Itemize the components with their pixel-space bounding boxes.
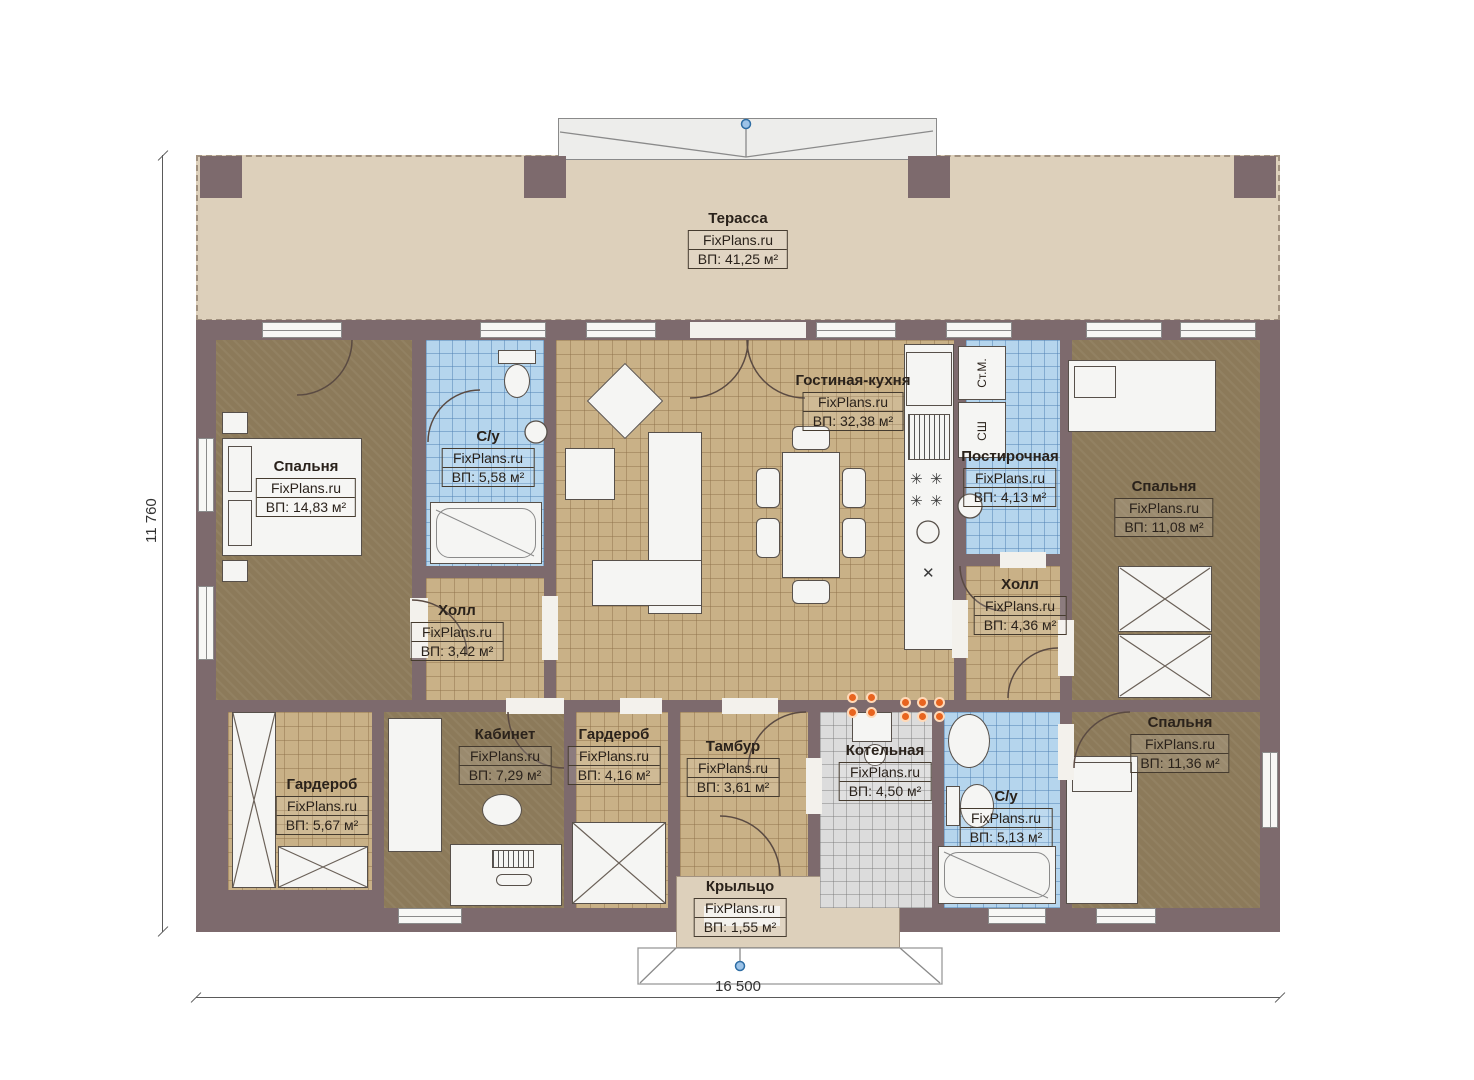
wardrobe-cabinet (1118, 634, 1212, 698)
room-label-office: Кабинет FixPlans.ru ВП: 7,29 м² (459, 726, 552, 785)
room-label-vestibule: Тамбур FixPlans.ru ВП: 3,61 м² (687, 738, 780, 797)
tv-stand (592, 560, 702, 606)
office-sofa (388, 718, 442, 852)
brand-label: FixPlans.ru (1131, 735, 1228, 753)
dimension-line-bottom (196, 997, 1280, 998)
brand-label: FixPlans.ru (277, 797, 368, 815)
room-name: Гардероб (568, 726, 661, 743)
brand-label: FixPlans.ru (443, 449, 534, 467)
radiator-marker-icon (917, 711, 928, 722)
room-name: С/у (442, 428, 535, 445)
area-label: ВП: 32,38 м² (804, 411, 902, 430)
room-label-hall-right: Холл FixPlans.ru ВП: 4,36 м² (974, 576, 1067, 635)
dimension-width-label: 16 500 (715, 978, 761, 995)
wardrobe-cabinet (278, 846, 368, 888)
dimension-tick (158, 150, 169, 161)
room-label-bathroom-top: С/у FixPlans.ru ВП: 5,58 м² (442, 428, 535, 487)
room-name: Холл (411, 602, 504, 619)
window (1180, 322, 1256, 338)
sink-marker-icon: ✕ (922, 566, 935, 581)
radiator-marker-icon (866, 707, 877, 718)
brand-label: FixPlans.ru (965, 469, 1056, 487)
dimension-tick (158, 926, 169, 937)
nightstand (222, 560, 248, 582)
window (946, 322, 1012, 338)
keyboard (496, 874, 532, 886)
area-label: ВП: 41,25 м² (689, 249, 787, 268)
pillow (228, 500, 252, 546)
room-name: Терасса (688, 210, 788, 227)
window (262, 322, 342, 338)
area-label: ВП: 5,58 м² (443, 467, 534, 486)
stove-burner-icon: ✳ (910, 494, 923, 509)
area-label: ВП: 4,16 м² (569, 765, 660, 784)
toilet-tank (946, 786, 960, 826)
radiator-marker-icon (917, 697, 928, 708)
room-label-wardrobe-mid: Гардероб FixPlans.ru ВП: 4,16 м² (568, 726, 661, 785)
room-name: Крыльцо (694, 878, 787, 895)
radiator-marker-icon (866, 692, 877, 703)
radiator-marker-icon (900, 697, 911, 708)
window (398, 908, 462, 924)
room-name: Гостиная-кухня (796, 372, 911, 389)
door-gap (1058, 724, 1074, 780)
area-label: ВП: 4,50 м² (840, 781, 931, 800)
terrace-post (1234, 156, 1276, 198)
room-label-bedroom-left: Спальня FixPlans.ru ВП: 14,83 м² (256, 458, 356, 517)
brand-label: FixPlans.ru (257, 479, 355, 497)
brand-label: FixPlans.ru (460, 747, 551, 765)
area-label: ВП: 4,13 м² (965, 487, 1056, 506)
window (1096, 908, 1156, 924)
toilet-tank (498, 350, 536, 364)
brand-label: FixPlans.ru (804, 393, 902, 411)
brand-label: FixPlans.ru (695, 899, 786, 917)
area-label: ВП: 4,36 м² (975, 615, 1066, 634)
room-name: Спальня (1114, 478, 1213, 495)
area-label: ВП: 11,08 м² (1115, 517, 1212, 536)
room-label-bedroom-top-right: Спальня FixPlans.ru ВП: 11,08 м² (1114, 478, 1213, 537)
room-name: Спальня (1130, 714, 1229, 731)
wardrobe-cabinet (1118, 566, 1212, 632)
area-label: ВП: 14,83 м² (257, 497, 355, 516)
brand-label: FixPlans.ru (840, 763, 931, 781)
area-label: ВП: 11,36 м² (1131, 753, 1228, 772)
room-name: Тамбур (687, 738, 780, 755)
chair (792, 580, 830, 604)
window (198, 438, 214, 512)
toilet-bowl (504, 364, 530, 398)
chair (756, 518, 780, 558)
area-label: ВП: 3,42 м² (412, 641, 503, 660)
door-gap (620, 698, 662, 714)
dishwasher (908, 414, 950, 460)
printer (492, 850, 534, 868)
bathtub (430, 502, 542, 564)
chair (756, 468, 780, 508)
brand-label: FixPlans.ru (961, 809, 1052, 827)
wardrobe-cabinet (232, 712, 276, 888)
window (586, 322, 656, 338)
washing-machine-label: Ст.М. (975, 349, 989, 397)
room-label-living-kitchen: Гостиная-кухня FixPlans.ru ВП: 32,38 м² (796, 372, 911, 431)
room-label-bathroom-bottom: С/у FixPlans.ru ВП: 5,13 м² (960, 788, 1053, 847)
nightstand (222, 412, 248, 434)
room-name: Кабинет (459, 726, 552, 743)
terrace-post (200, 156, 242, 198)
terrace-steps (558, 118, 937, 160)
sink (948, 714, 990, 768)
chair (842, 468, 866, 508)
fridge (906, 352, 952, 406)
brand-label: FixPlans.ru (688, 759, 779, 777)
brand-label: FixPlans.ru (412, 623, 503, 641)
door-gap (952, 600, 968, 658)
dimension-height-label: 11 760 (143, 498, 160, 543)
radiator-marker-icon (934, 697, 945, 708)
dimension-line-left (162, 155, 163, 932)
stove-burner-icon: ✳ (910, 472, 923, 487)
brand-label: FixPlans.ru (569, 747, 660, 765)
room-label-bedroom-bottom-right: Спальня FixPlans.ru ВП: 11,36 м² (1130, 714, 1229, 773)
door-gap (542, 596, 558, 660)
window (480, 322, 546, 338)
room-label-wardrobe-left: Гардероб FixPlans.ru ВП: 5,67 м² (276, 776, 369, 835)
terrace-post (908, 156, 950, 198)
radiator-marker-icon (847, 707, 858, 718)
room-label-laundry: Постирочная FixPlans.ru ВП: 4,13 м² (961, 448, 1058, 507)
window (1086, 322, 1162, 338)
door-gap (1000, 552, 1046, 568)
door-gap (506, 698, 564, 714)
terrace-post (524, 156, 566, 198)
room-name: С/у (960, 788, 1053, 805)
room-name: Холл (974, 576, 1067, 593)
coffee-table (565, 448, 615, 500)
brand-label: FixPlans.ru (689, 231, 787, 249)
chair (842, 518, 866, 558)
pillow (1072, 762, 1132, 792)
area-label: ВП: 7,29 м² (460, 765, 551, 784)
area-label: ВП: 5,67 м² (277, 815, 368, 834)
window (1262, 752, 1278, 828)
room-name: Котельная (839, 742, 932, 759)
room-name: Спальня (256, 458, 356, 475)
area-label: ВП: 1,55 м² (695, 917, 786, 936)
room-label-porch: Крыльцо FixPlans.ru ВП: 1,55 м² (694, 878, 787, 937)
radiator-marker-icon (900, 711, 911, 722)
dining-table (782, 452, 840, 578)
wardrobe-cabinet (572, 822, 666, 904)
room-name: Постирочная (961, 448, 1058, 465)
room-label-hall-left: Холл FixPlans.ru ВП: 3,42 м² (411, 602, 504, 661)
radiator-marker-icon (847, 692, 858, 703)
brand-label: FixPlans.ru (1115, 499, 1212, 517)
window (198, 586, 214, 660)
room-name: Гардероб (276, 776, 369, 793)
stove-burner-icon: ✳ (930, 472, 943, 487)
pillow (1074, 366, 1116, 398)
room-label-terrace: Терасса FixPlans.ru ВП: 41,25 м² (688, 210, 788, 269)
area-label: ВП: 5,13 м² (961, 827, 1052, 846)
window (988, 908, 1046, 924)
radiator-marker-icon (934, 711, 945, 722)
room-label-boiler: Котельная FixPlans.ru ВП: 4,50 м² (839, 742, 932, 801)
floor-plan-canvas: ✳ ✳ ✳ ✳ ✕ Ст.М. СШ (0, 0, 1474, 1080)
door-gap (806, 758, 822, 814)
pillow (228, 446, 252, 492)
terrace-door-opening (690, 322, 806, 338)
bathtub (938, 846, 1056, 904)
stove-burner-icon: ✳ (930, 494, 943, 509)
door-gap (722, 698, 778, 714)
brand-label: FixPlans.ru (975, 597, 1066, 615)
window (816, 322, 896, 338)
area-label: ВП: 3,61 м² (688, 777, 779, 796)
office-chair (482, 794, 522, 826)
